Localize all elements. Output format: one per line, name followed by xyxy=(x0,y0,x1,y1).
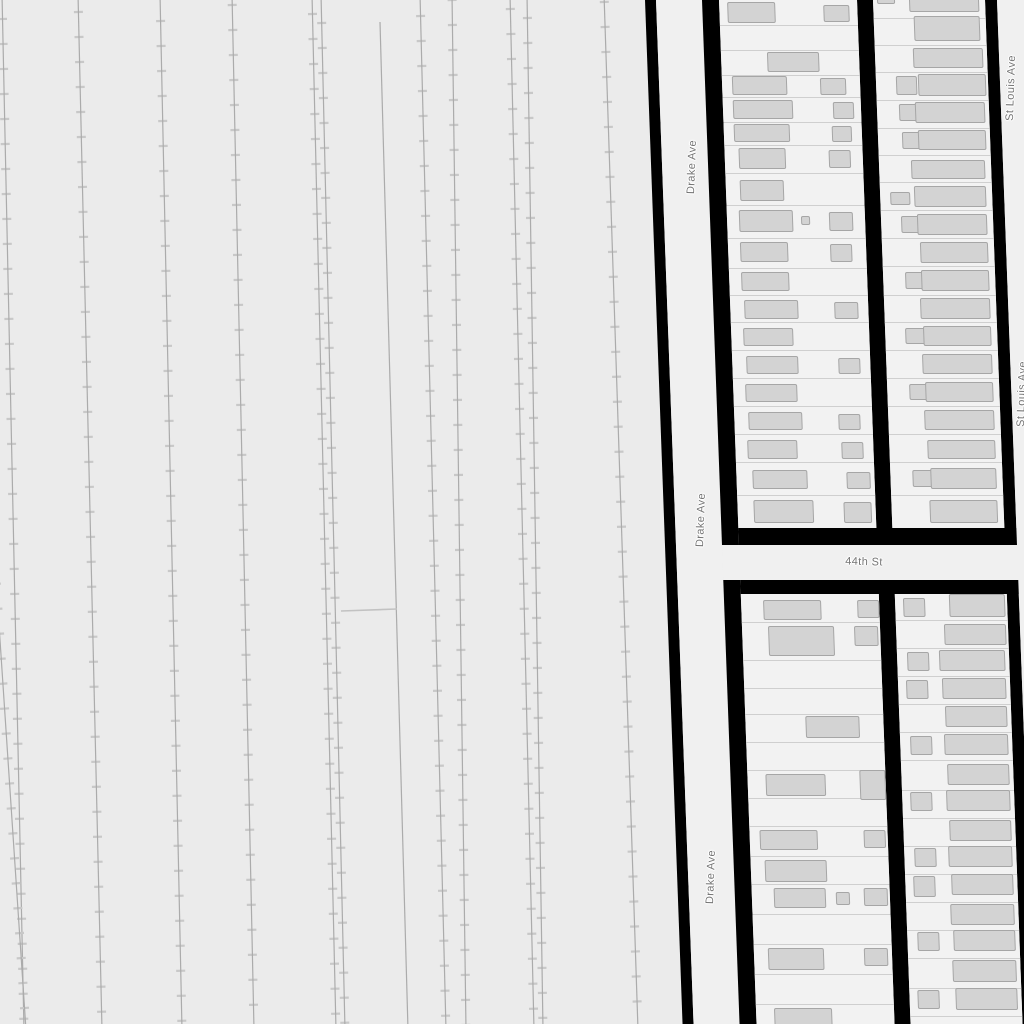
building xyxy=(747,440,798,459)
parcel-boundary xyxy=(734,406,872,407)
building xyxy=(910,736,933,755)
rail-track xyxy=(78,0,102,1024)
parcel-boundary xyxy=(731,322,869,323)
building xyxy=(914,186,987,207)
building xyxy=(863,830,886,848)
building xyxy=(838,414,861,430)
building xyxy=(833,102,855,119)
building xyxy=(910,792,933,811)
building xyxy=(930,468,997,489)
building xyxy=(741,272,790,291)
street-label: Drake Ave xyxy=(685,140,699,195)
building xyxy=(768,948,825,970)
rail-track xyxy=(527,0,543,1024)
street-label: St Louis Ave xyxy=(1004,55,1018,121)
building xyxy=(829,150,852,168)
parcel-boundary xyxy=(735,434,873,435)
building xyxy=(944,734,1009,755)
building xyxy=(774,888,827,908)
parcel-boundary xyxy=(737,495,875,496)
building xyxy=(945,706,1008,727)
rail-track xyxy=(232,0,254,1024)
building xyxy=(927,440,996,459)
rail-track-ties xyxy=(0,0,28,1019)
building xyxy=(768,626,835,656)
building xyxy=(846,472,871,489)
parcel-boundary xyxy=(885,322,997,323)
building xyxy=(913,876,936,897)
building xyxy=(765,774,826,796)
building xyxy=(836,892,850,905)
building xyxy=(841,442,864,459)
rail-track xyxy=(604,0,638,1024)
parcel-boundary xyxy=(751,884,889,885)
parcel-boundary xyxy=(910,1016,1022,1017)
building xyxy=(917,214,988,235)
parcel-boundary xyxy=(725,173,863,174)
building xyxy=(732,76,788,95)
building xyxy=(906,680,929,699)
parcel-boundary xyxy=(882,238,994,239)
building xyxy=(907,652,930,671)
parcel-boundary xyxy=(896,620,1008,621)
building xyxy=(920,298,991,319)
parcel-boundary xyxy=(728,238,866,239)
rail-track xyxy=(420,0,446,1024)
building xyxy=(924,410,995,430)
building xyxy=(864,948,889,966)
building xyxy=(946,790,1011,811)
building xyxy=(859,770,886,800)
building xyxy=(759,830,818,850)
building xyxy=(745,384,798,402)
building xyxy=(949,594,1006,617)
parcel-boundary xyxy=(744,688,882,689)
parcel-boundary xyxy=(884,295,996,296)
block-north-east-of-alley xyxy=(873,0,1005,528)
building xyxy=(915,102,986,123)
parcel-boundary xyxy=(730,295,868,296)
parcel-boundary xyxy=(908,958,1020,959)
building xyxy=(752,470,808,489)
parcel-boundary xyxy=(754,944,892,945)
building xyxy=(929,500,998,523)
parcel-boundary xyxy=(755,974,893,975)
parcel-boundary xyxy=(750,856,888,857)
building xyxy=(739,210,794,232)
building xyxy=(820,78,847,95)
building xyxy=(733,100,794,119)
parcel-boundary xyxy=(736,462,874,463)
rail-track xyxy=(160,0,182,1024)
parcel-boundary xyxy=(886,350,998,351)
parcel-boundary xyxy=(729,268,867,269)
building xyxy=(857,600,880,618)
parcel-boundary xyxy=(756,1004,894,1005)
parcel-boundary xyxy=(724,145,862,146)
parcel-boundary xyxy=(901,760,1013,761)
building xyxy=(903,598,926,617)
parcel-boundary xyxy=(720,25,858,26)
building xyxy=(854,626,879,646)
building xyxy=(914,848,937,867)
parcel-boundary xyxy=(887,378,999,379)
building xyxy=(767,52,820,72)
parcel-boundary xyxy=(903,818,1015,819)
building xyxy=(765,860,828,882)
building xyxy=(942,678,1007,699)
street-label: St Louis Ave xyxy=(1015,361,1024,427)
map-canvas[interactable]: Drake AveDrake AveDrake AveSt Louis AveS… xyxy=(0,0,1024,1024)
building xyxy=(734,124,791,142)
building xyxy=(823,5,850,22)
building xyxy=(748,412,803,430)
building xyxy=(944,624,1007,645)
block-south-west-of-alley xyxy=(741,594,895,1024)
parcel-boundary xyxy=(900,732,1012,733)
parcel-boundary xyxy=(749,826,887,827)
building xyxy=(917,932,940,951)
building xyxy=(746,356,799,374)
block-edge xyxy=(740,580,1019,594)
parcel-boundary xyxy=(721,50,859,51)
parcel-boundary xyxy=(745,714,883,715)
parcel-boundary xyxy=(733,378,871,379)
parcel-boundary xyxy=(888,406,1000,407)
building xyxy=(843,502,872,523)
block-edge xyxy=(738,528,1017,545)
building xyxy=(917,990,940,1009)
building xyxy=(838,358,861,374)
building xyxy=(805,716,860,738)
rail-track xyxy=(452,0,466,1024)
building xyxy=(890,192,910,205)
building xyxy=(909,0,980,12)
building xyxy=(830,244,853,262)
street-label: Drake Ave xyxy=(704,850,718,905)
building xyxy=(774,1008,833,1024)
parcel-boundary xyxy=(897,648,1009,649)
street-label: 44th St xyxy=(845,556,883,569)
building xyxy=(918,74,987,96)
building xyxy=(949,820,1012,841)
parcel-boundary xyxy=(877,100,989,101)
rail-connector xyxy=(341,609,397,611)
parcel-boundary xyxy=(723,122,861,123)
block-north-west-of-alley xyxy=(719,0,877,528)
parcel-boundary xyxy=(899,704,1011,705)
parcel-boundary xyxy=(875,45,987,46)
building xyxy=(922,354,993,374)
building xyxy=(738,148,786,169)
building xyxy=(939,650,1006,671)
building xyxy=(953,930,1016,951)
building xyxy=(913,48,984,68)
building xyxy=(832,126,853,142)
building xyxy=(947,764,1010,785)
rail-track xyxy=(2,0,24,1024)
street-label: Drake Ave xyxy=(694,493,708,548)
rail-track-ties xyxy=(0,559,29,1009)
parcel-boundary xyxy=(883,266,995,267)
building xyxy=(753,500,814,523)
building xyxy=(896,76,918,95)
parcel-boundary xyxy=(898,676,1010,677)
building xyxy=(740,180,785,201)
building xyxy=(743,328,794,346)
building xyxy=(948,846,1013,867)
parcel-boundary xyxy=(742,622,880,623)
building xyxy=(950,904,1015,925)
building xyxy=(921,270,990,291)
rail-track xyxy=(380,22,408,1024)
building xyxy=(920,242,989,263)
building xyxy=(864,888,889,906)
building xyxy=(834,302,859,319)
parcel-boundary xyxy=(906,902,1018,903)
building xyxy=(727,2,776,23)
parcel-boundary xyxy=(746,742,884,743)
parcel-boundary xyxy=(890,462,1002,463)
building xyxy=(951,874,1014,895)
building xyxy=(763,600,822,620)
building xyxy=(914,16,981,41)
building xyxy=(744,300,799,319)
building xyxy=(877,0,895,4)
parcel-boundary xyxy=(880,182,992,183)
building xyxy=(918,130,987,150)
rail-track xyxy=(510,0,534,1024)
parcel-boundary xyxy=(732,350,870,351)
parcel-boundary xyxy=(743,660,881,661)
parcel-boundary xyxy=(879,155,991,156)
building xyxy=(911,160,986,179)
building xyxy=(740,242,789,262)
parcel-boundary xyxy=(753,914,891,915)
parcel-boundary xyxy=(723,97,861,98)
parcel-boundary xyxy=(727,205,865,206)
building xyxy=(925,382,994,402)
parcel-boundary xyxy=(878,128,990,129)
building xyxy=(952,960,1017,982)
parcel-boundary xyxy=(891,495,1003,496)
building xyxy=(923,326,992,346)
parcel-boundary xyxy=(876,72,988,73)
building xyxy=(829,212,854,231)
building xyxy=(801,216,810,225)
parcel-boundary xyxy=(889,434,1001,435)
building xyxy=(955,988,1018,1010)
block-south-east-of-alley xyxy=(895,594,1023,1024)
parcel-boundary xyxy=(881,210,993,211)
